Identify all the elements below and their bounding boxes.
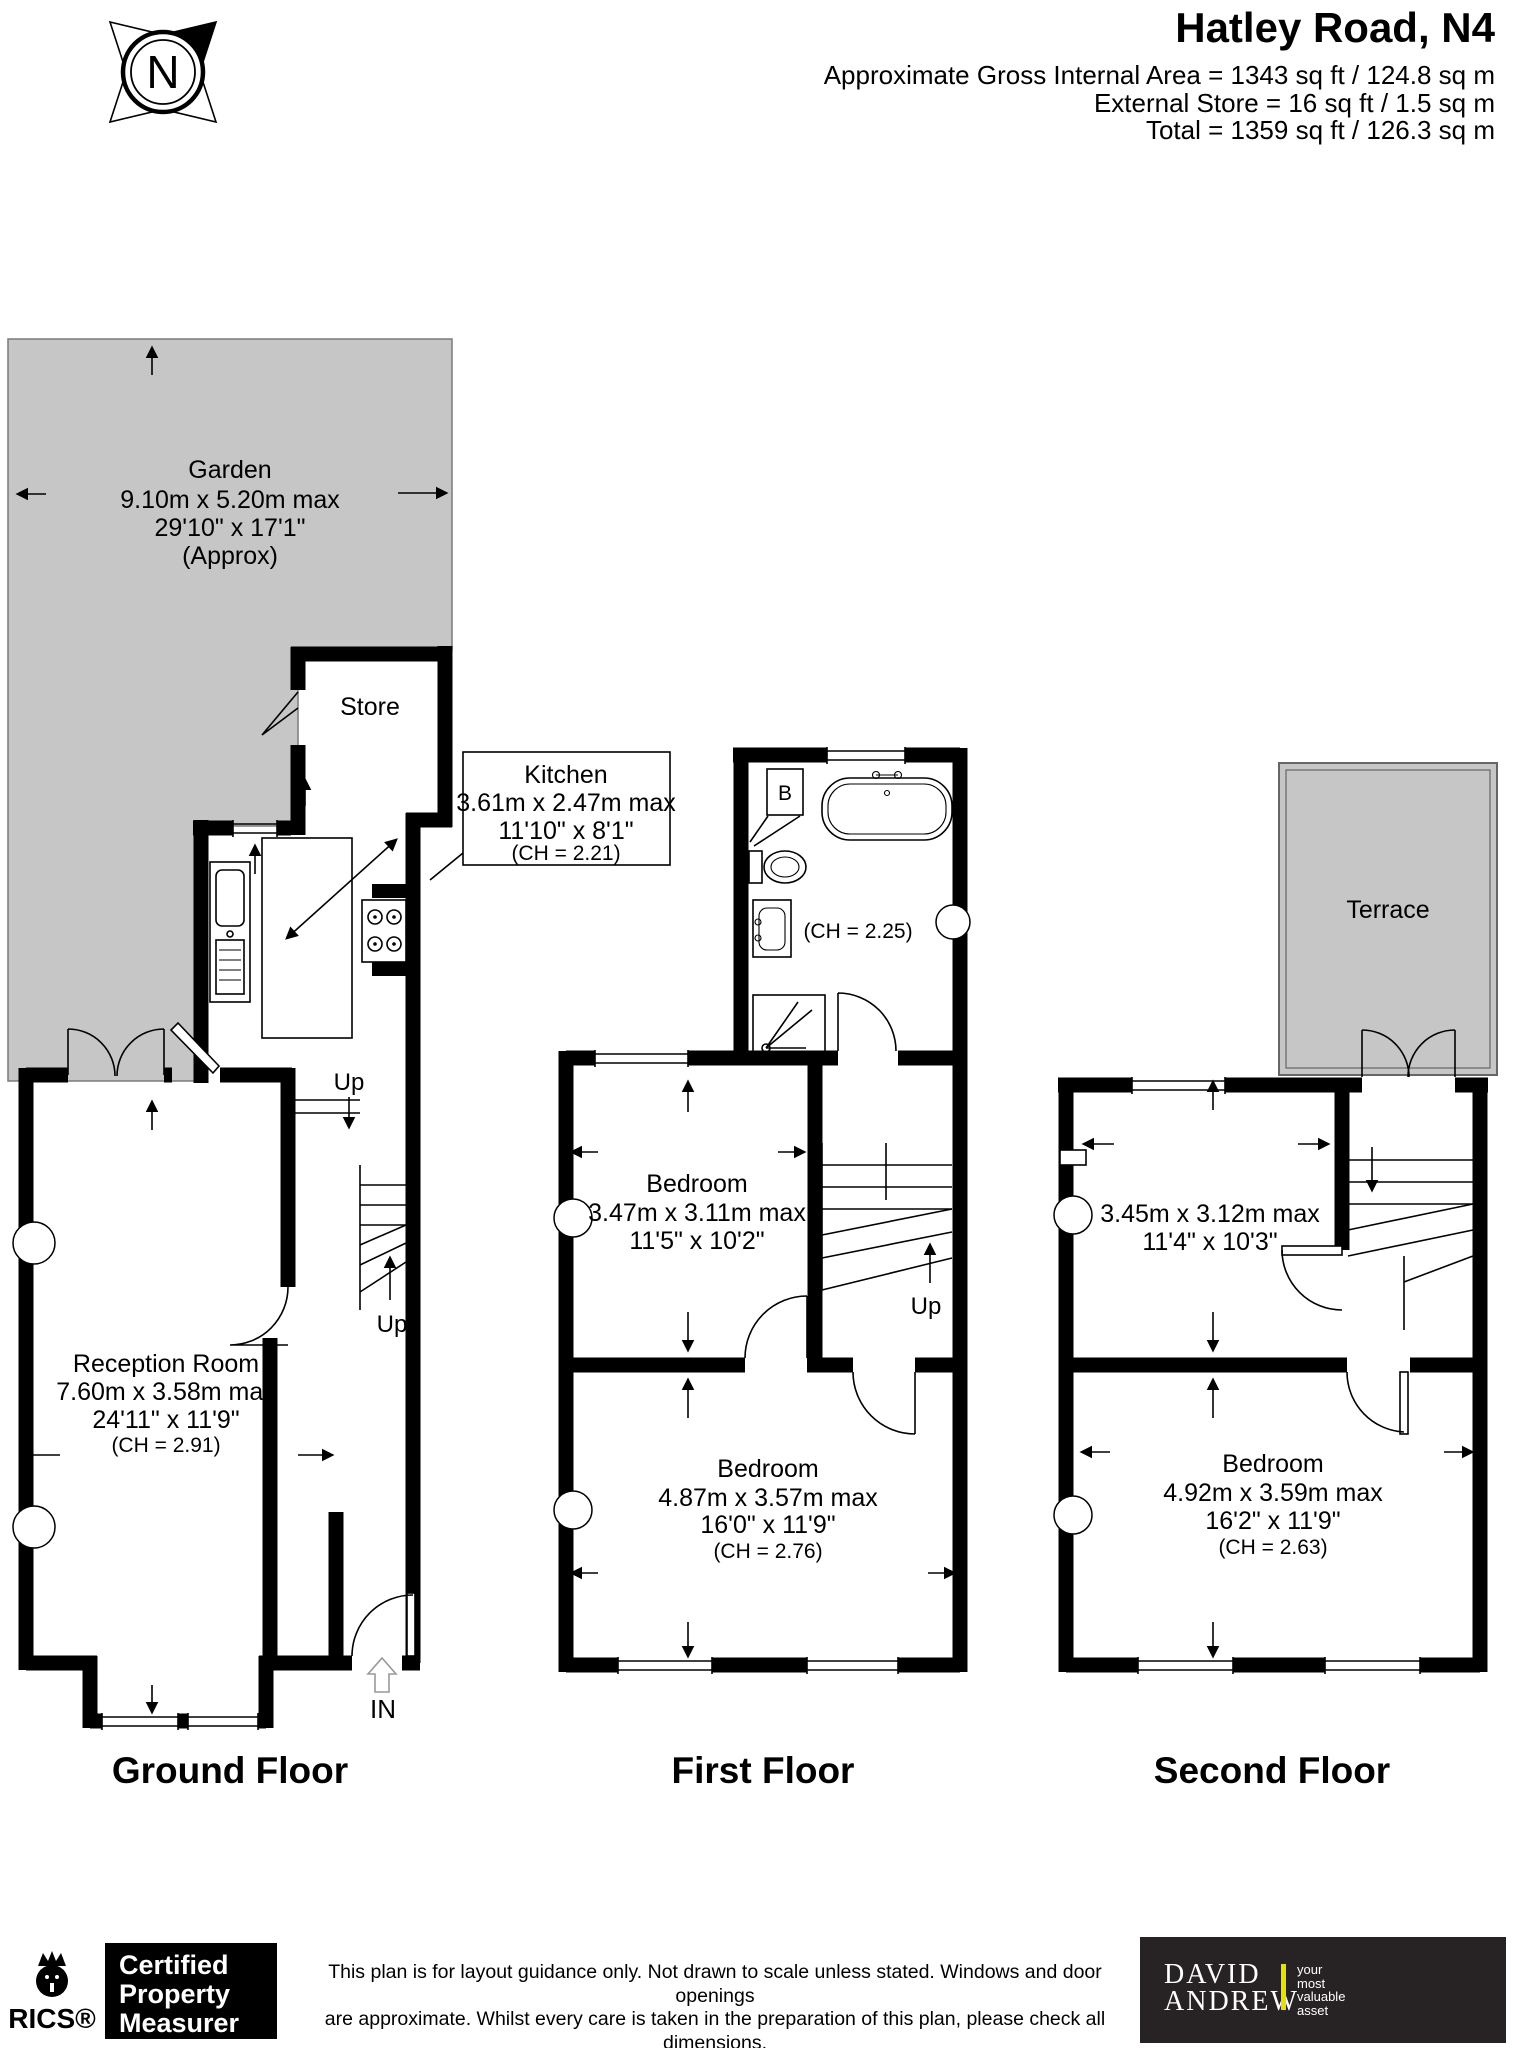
garden-note: (Approx)	[182, 542, 278, 570]
floorplan-page: N Hatley Road, N4 Approximate Gross Inte…	[0, 0, 1513, 2048]
kitchen-sink-unit	[210, 862, 250, 1002]
cert-line: Certified	[119, 1951, 277, 1980]
garden-label: Garden	[188, 456, 271, 484]
wall-alcove	[13, 1222, 55, 1264]
title-block: Hatley Road, N4 Approximate Gross Intern…	[824, 4, 1495, 145]
compass-north-letter: N	[146, 46, 179, 98]
compass-star: N	[110, 22, 216, 122]
store-label: Store	[340, 693, 400, 721]
second-walls	[1058, 1078, 1488, 1672]
bedroom-front-label: Bedroom	[717, 1455, 818, 1483]
gross-internal-area: Approximate Gross Internal Area = 1343 s…	[824, 62, 1495, 90]
reception-dims-m: 7.60m x 3.58m max	[56, 1378, 276, 1406]
bedroom-rear-label: Bedroom	[646, 1170, 747, 1198]
second-doors	[1282, 1246, 1408, 1434]
garden-dims-ft: 29'10" x 17'1"	[154, 514, 305, 542]
basin	[753, 900, 791, 957]
boiler-cupboard: B	[750, 769, 803, 846]
external-store-area: External Store = 16 sq ft / 1.5 sq m	[824, 90, 1495, 118]
entrance-arrow-icon	[368, 1658, 396, 1692]
disclaimer-line: are approximate. Whilst every care is ta…	[290, 2008, 1140, 2048]
wall-alcove	[554, 1491, 592, 1529]
wall-alcove	[1054, 1496, 1092, 1534]
bedroom-dims-ft: 16'2" x 11'9"	[1205, 1507, 1340, 1535]
bedroom-rear-dims-m: 3.47m x 3.11m max	[588, 1199, 806, 1227]
page-title: Hatley Road, N4	[824, 4, 1495, 52]
disclaimer: This plan is for layout guidance only. N…	[290, 1961, 1140, 2048]
terrace-area: Terrace	[1279, 763, 1497, 1077]
certified-property-measurer-badge: Certified Property Measurer	[105, 1943, 277, 2039]
ground-staircase	[360, 1165, 406, 1310]
bedroom-label: Bedroom	[1222, 1450, 1323, 1478]
bedroom-front-dims-m: 4.87m x 3.57m max	[658, 1484, 878, 1512]
front-door-leaf	[407, 1593, 415, 1656]
second-staircase	[1348, 1147, 1473, 1330]
up-stairs-label: Up	[377, 1311, 408, 1338]
reception-dims-ft: 24'11" x 11'9"	[92, 1406, 239, 1434]
cert-line: Measurer	[119, 2009, 277, 2038]
reception-ch: (CH = 2.91)	[111, 1434, 220, 1457]
total-area: Total = 1359 sq ft / 126.3 sq m	[824, 117, 1495, 145]
toilet	[749, 851, 806, 883]
first-staircase	[822, 1143, 952, 1290]
second-floor-caption: Second Floor	[1082, 1750, 1462, 1792]
rics-wordmark: RICS®	[8, 2003, 96, 2034]
bedroom-rear-dims-ft: 11'5" x 10'2"	[629, 1227, 764, 1255]
stove-hob	[362, 884, 406, 976]
second-windows	[1132, 1077, 1420, 1674]
b athtub	[822, 772, 952, 841]
rics-logo: RICS®	[6, 1948, 98, 2043]
first-floor-caption: First Floor	[573, 1750, 953, 1792]
first-floor-plan: B	[540, 740, 980, 1720]
compass-rose: N	[85, 0, 245, 150]
rear-room-dims-m: 3.45m x 3.12m max	[1100, 1200, 1320, 1228]
brand-tagline: your most valuable asset	[1297, 1963, 1345, 2017]
boiler-label: B	[778, 782, 792, 805]
wall-shelf	[1060, 1150, 1086, 1165]
second-floor-plan: Terrace	[1040, 750, 1513, 1720]
bedroom-dims-m: 4.92m x 3.59m max	[1163, 1479, 1383, 1507]
kitchen-steps	[295, 1100, 360, 1113]
brand-wordmark: DAVID ANDREW	[1164, 1961, 1299, 2015]
reception-label: Reception Room	[73, 1350, 259, 1378]
bedroom-front-ch: (CH = 2.76)	[713, 1540, 822, 1563]
rics-lion-icon	[36, 1951, 68, 1997]
wall-alcove	[13, 1506, 55, 1548]
cert-line: Property	[119, 1980, 277, 2009]
bedroom-front-dims-ft: 16'0" x 11'9"	[700, 1511, 835, 1539]
brand-accent-bar	[1281, 1964, 1286, 2010]
up-steps-label: Up	[334, 1069, 365, 1096]
wall-alcove	[936, 905, 970, 939]
ground-floor-caption: Ground Floor	[40, 1750, 420, 1792]
wall-alcove	[554, 1199, 592, 1237]
kitchen-counter	[262, 838, 352, 1038]
bathroom-ch: (CH = 2.25)	[803, 920, 912, 943]
david-andrew-logo: DAVID ANDREW your most valuable asset	[1140, 1937, 1506, 2043]
up-label: Up	[911, 1293, 942, 1320]
wall-alcove	[1054, 1196, 1092, 1234]
rear-room-dims-ft: 11'4" x 10'3"	[1142, 1228, 1277, 1256]
bedroom-ch: (CH = 2.63)	[1218, 1536, 1327, 1559]
garden-dims-m: 9.10m x 5.20m max	[120, 486, 340, 514]
terrace-label: Terrace	[1346, 896, 1429, 924]
bedroom-door-leaf	[1400, 1372, 1408, 1434]
disclaimer-line: This plan is for layout guidance only. N…	[290, 1961, 1140, 2008]
in-label: IN	[370, 1694, 396, 1724]
